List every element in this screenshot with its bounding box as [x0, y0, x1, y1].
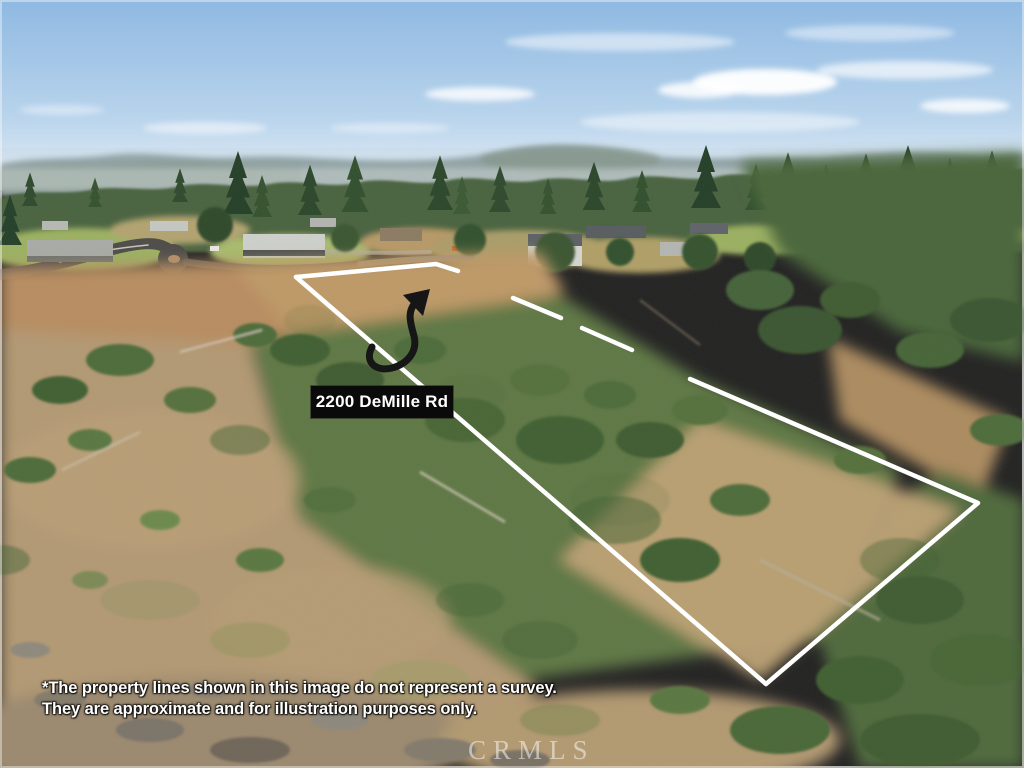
crmls-watermark: CRMLS — [468, 735, 595, 766]
property-boundary-line — [296, 264, 978, 684]
disclaimer-line-2: They are approximate and for illustratio… — [42, 699, 557, 720]
disclaimer-text: *The property lines shown in this image … — [42, 678, 557, 720]
boundary-main-edges — [296, 277, 978, 684]
boundary-top-edge — [296, 264, 458, 277]
aerial-photo: 2200 DeMille Rd *The property lines show… — [0, 0, 1024, 768]
annotation-layer — [0, 0, 1024, 768]
boundary-dash-segment — [582, 328, 632, 350]
boundary-dash-segment — [513, 298, 561, 318]
address-label: 2200 DeMille Rd — [311, 386, 453, 418]
disclaimer-line-1: *The property lines shown in this image … — [42, 678, 557, 699]
arrow-icon — [369, 289, 430, 369]
